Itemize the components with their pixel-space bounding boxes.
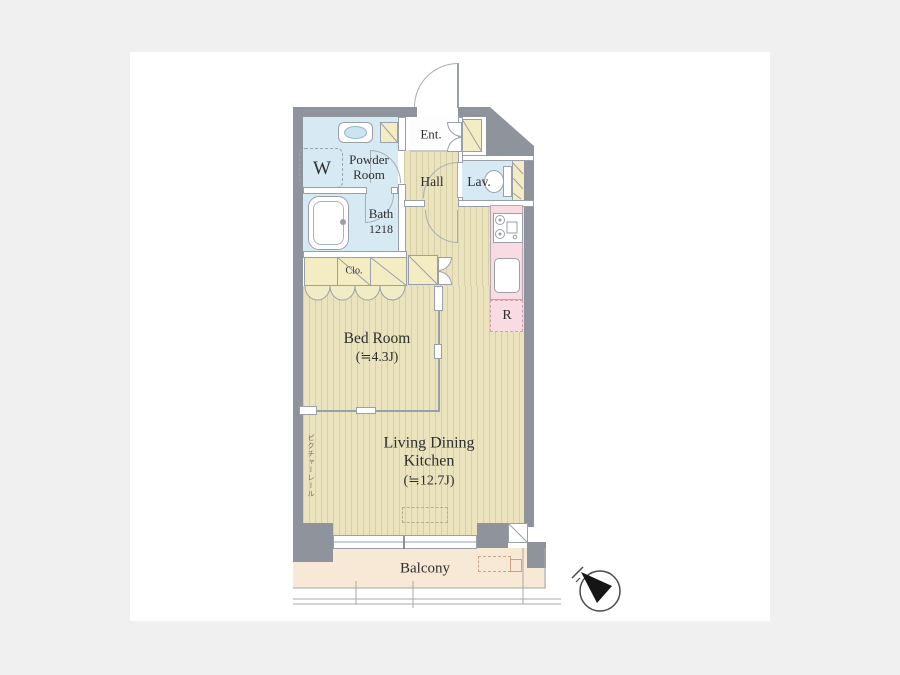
pipe-space bbox=[512, 160, 524, 200]
label-entrance: Ent. bbox=[420, 128, 441, 143]
corner-window bbox=[508, 523, 528, 543]
column-box bbox=[408, 255, 438, 285]
powder-column-box bbox=[380, 122, 398, 143]
partition-panel-vert bbox=[434, 344, 442, 359]
toilet-tank bbox=[503, 166, 512, 197]
label-ldk-line2: Kitchen bbox=[404, 453, 455, 470]
closet-cell-3 bbox=[370, 257, 407, 286]
wall-powder-hall bbox=[398, 184, 406, 257]
shoe-cabinet bbox=[462, 119, 482, 152]
label-bedroom: Bed Room (≒4.3J) bbox=[344, 330, 411, 366]
stove-icon bbox=[493, 213, 523, 243]
evacuation-hatch-mark bbox=[478, 556, 511, 572]
partition-bedroom-vertical bbox=[438, 310, 440, 411]
label-lavatory: Lav. bbox=[467, 174, 491, 190]
partition-pocket-top bbox=[434, 286, 443, 311]
label-washer: W bbox=[313, 158, 331, 180]
label-ldk-line1: Living Dining bbox=[383, 434, 474, 451]
partition-panel-mid bbox=[356, 407, 376, 414]
label-refrigerator: R bbox=[502, 308, 511, 324]
washbasin-bowl bbox=[344, 126, 367, 139]
label-bath-name: Bath bbox=[369, 206, 394, 221]
label-hall: Hall bbox=[420, 174, 443, 190]
label-bedroom-name: Bed Room bbox=[344, 330, 411, 347]
furniture-placement-mark bbox=[402, 507, 448, 523]
label-bath-size: 1218 bbox=[369, 222, 393, 236]
balcony-window bbox=[333, 535, 477, 549]
label-ldk: Living Dining Kitchen (≒12.7J) bbox=[383, 434, 474, 489]
wall-powder-bath-stub bbox=[391, 187, 398, 194]
label-bath: Bath 1218 bbox=[369, 207, 394, 237]
label-powder-room: Powder Room bbox=[349, 153, 389, 183]
label-bedroom-area: (≒4.3J) bbox=[356, 349, 398, 364]
label-powder-line1: Powder bbox=[349, 152, 389, 167]
wall-block-balcony-right bbox=[527, 542, 546, 568]
outer-wall-top-right bbox=[458, 107, 490, 117]
closet-cell-1 bbox=[304, 257, 338, 286]
partition-pocket-left bbox=[299, 406, 317, 415]
bathtub-faucet bbox=[340, 219, 346, 225]
wall-lavatory-top bbox=[462, 155, 534, 161]
wall-powder-bath bbox=[303, 187, 367, 194]
outer-wall-top-left bbox=[293, 107, 417, 117]
floorplan-page: Ent. Powder Room W Hall Lav. Bath 1218 C… bbox=[0, 0, 900, 675]
wall-block-bottom-left bbox=[293, 523, 333, 562]
wall-hall-ldk-left bbox=[404, 200, 425, 207]
label-picture-rail: ピクチャーレール bbox=[306, 434, 316, 514]
wall-block-bottom-right bbox=[477, 523, 508, 548]
label-closet: Clo. bbox=[346, 265, 363, 277]
label-balcony: Balcony bbox=[400, 560, 450, 577]
label-ldk-area: (≒12.7J) bbox=[403, 473, 454, 488]
label-powder-line2: Room bbox=[353, 167, 385, 182]
balcony-drain-mark bbox=[510, 559, 522, 572]
sink-icon bbox=[494, 258, 520, 293]
wall-powder-entrance bbox=[398, 117, 406, 151]
